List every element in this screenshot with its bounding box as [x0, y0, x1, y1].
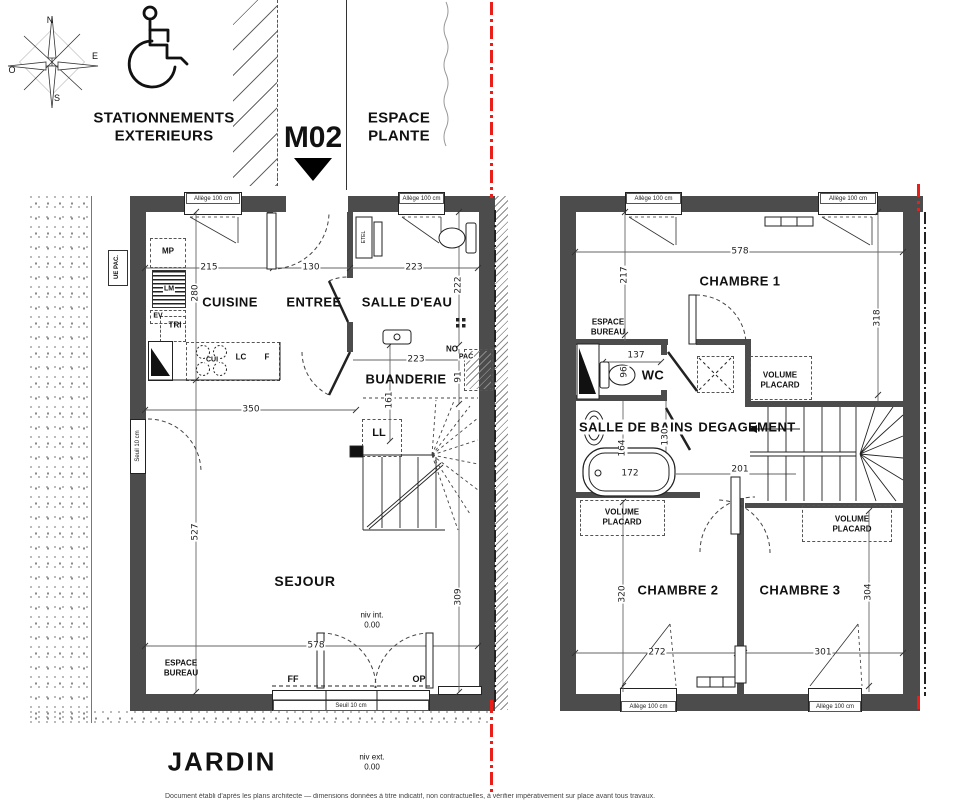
- stationnements-label-line2: EXTERIEURS: [115, 128, 214, 145]
- compass-label-e: E: [92, 51, 98, 61]
- equip-label-no: NO: [446, 345, 458, 354]
- dim-gf-sejour-d: 527: [192, 522, 201, 541]
- ff-placard2-line1: VOLUME: [605, 508, 639, 517]
- wheelchair-icon: [129, 7, 187, 87]
- dim-ff-chambre3-d: 304: [865, 582, 874, 601]
- lot-limit-line-bottom: [490, 700, 493, 792]
- stationnements-label-line1: STATIONNEMENTS: [93, 110, 234, 127]
- ff-placard3-line2: PLACARD: [832, 525, 871, 534]
- room-label-chambre3: CHAMBRE 3: [760, 583, 841, 598]
- equip-label-lm: LM: [163, 286, 175, 293]
- equip-label-ev: EV: [152, 313, 163, 320]
- compass-label-s: S: [54, 93, 60, 103]
- espace-plante-label-line1: ESPACE: [368, 110, 430, 127]
- dim-ff-sdb-d: 164: [619, 438, 628, 457]
- room-label-entree: ENTREE: [286, 295, 341, 310]
- dim-gf-sejour-w: 578: [306, 642, 325, 651]
- room-label-salle-eau: SALLE D'EAU: [362, 295, 453, 310]
- dim-ff-east-d: 318: [874, 308, 883, 327]
- gf-dimension-lines: [142, 209, 481, 695]
- ff-placard1-line2: PLACARD: [760, 381, 799, 390]
- equip-label-ff: FF: [288, 674, 299, 684]
- room-label-buanderie: BUANDERIE: [366, 372, 447, 387]
- niv-int-label: niv int.: [360, 611, 383, 620]
- room-label-sejour: SEJOUR: [274, 573, 335, 589]
- dim-gf-buanderie-w: 223: [406, 356, 425, 365]
- dim-ff-chambre1-w: 578: [730, 248, 749, 257]
- dim-ff-chambre2-d: 320: [619, 584, 628, 603]
- equip-label-op: OP: [412, 674, 425, 684]
- dim-ff-west-d: 217: [621, 265, 630, 284]
- ff-lot-limit-tick-top: [917, 184, 920, 211]
- unit-label: M02: [284, 121, 342, 155]
- unit-pointer-icon: [294, 158, 332, 181]
- compass-label-n: N: [47, 15, 54, 25]
- equip-label-etel: ETEL: [361, 231, 367, 244]
- ff-lot-limit-tick-bottom: [917, 696, 920, 712]
- dim-ff-wc-d: 96: [621, 365, 630, 378]
- lot-limit-line-top: [490, 2, 493, 198]
- dim-gf-cuisine-w: 215: [199, 264, 218, 273]
- compass-label-o: O: [8, 65, 15, 75]
- dim-gf-pac-d: 91: [455, 370, 464, 383]
- dim-gf-stair-w: 161: [386, 390, 395, 409]
- dim-ff-bain-w: 172: [620, 470, 639, 479]
- gf-espace-bureau-line2: BUREAU: [164, 669, 198, 678]
- dim-ff-wc-w: 137: [626, 352, 645, 361]
- floor-plan-sheet: Allège 100 cm Allège 100 cm Seuil 10 cm …: [0, 0, 959, 800]
- equip-label-f: F: [265, 353, 270, 362]
- niv-ext-value: 0.00: [364, 763, 380, 772]
- equip-label-lc: LC: [236, 353, 247, 362]
- wavy-line: [444, 2, 448, 146]
- dim-gf-sejour-l: 350: [241, 406, 260, 415]
- gf-espace-bureau-line1: ESPACE: [165, 659, 197, 668]
- fine-print-illegible: Document établi d'après les plans archit…: [165, 793, 955, 800]
- dim-ff-chambre3-w: 301: [813, 649, 832, 658]
- room-label-cuisine: CUISINE: [202, 295, 258, 310]
- jardin-label: JARDIN: [168, 747, 277, 778]
- dim-gf-salle-eau-d: 222: [455, 275, 464, 294]
- ff-placard2-line2: PLACARD: [602, 518, 641, 527]
- dim-gf-cuisine-d: 280: [192, 283, 201, 302]
- niv-ext-label: niv ext.: [359, 753, 384, 762]
- ff-door-leaves: [666, 295, 740, 534]
- espace-plante-label-line2: PLANTE: [368, 128, 430, 145]
- dim-gf-east-d: 309: [455, 587, 464, 606]
- equip-label-tri: TRI: [169, 321, 182, 330]
- gf-vent-icon: [456, 318, 466, 328]
- ff-espace-bureau-line2: BUREAU: [591, 328, 625, 337]
- dim-gf-entree-w: 130: [301, 264, 320, 273]
- dim-ff-degagement-w: 201: [730, 466, 749, 475]
- gf-window-swings: [190, 217, 441, 243]
- ff-placard3-line1: VOLUME: [835, 515, 869, 524]
- equip-label-ll: LL: [372, 427, 385, 439]
- room-label-degagement: DEGAGEMENT: [698, 420, 795, 435]
- niv-int-value: 0.00: [364, 621, 380, 630]
- room-label-chambre1: CHAMBRE 1: [700, 274, 781, 289]
- ff-placard1-line1: VOLUME: [763, 371, 797, 380]
- ff-party-limit-line: [924, 212, 926, 696]
- equip-label-pac: PAC: [458, 354, 474, 361]
- dim-ff-chambre2-w: 272: [647, 649, 666, 658]
- gf-door-arcs: [148, 212, 430, 688]
- room-label-wc: WC: [642, 368, 664, 383]
- ff-espace-bureau-line1: ESPACE: [592, 318, 624, 327]
- room-label-chambre2: CHAMBRE 2: [638, 583, 719, 598]
- room-label-salle-de-bains: SALLE DE BAINS: [579, 420, 693, 435]
- dim-ff-degagement-d: 130: [662, 427, 671, 446]
- equip-label-cui: CUI: [205, 357, 219, 364]
- dim-gf-salle-eau-w: 223: [404, 264, 423, 273]
- equip-label-mp: MP: [162, 247, 174, 256]
- gf-party-limit-line: [494, 210, 496, 702]
